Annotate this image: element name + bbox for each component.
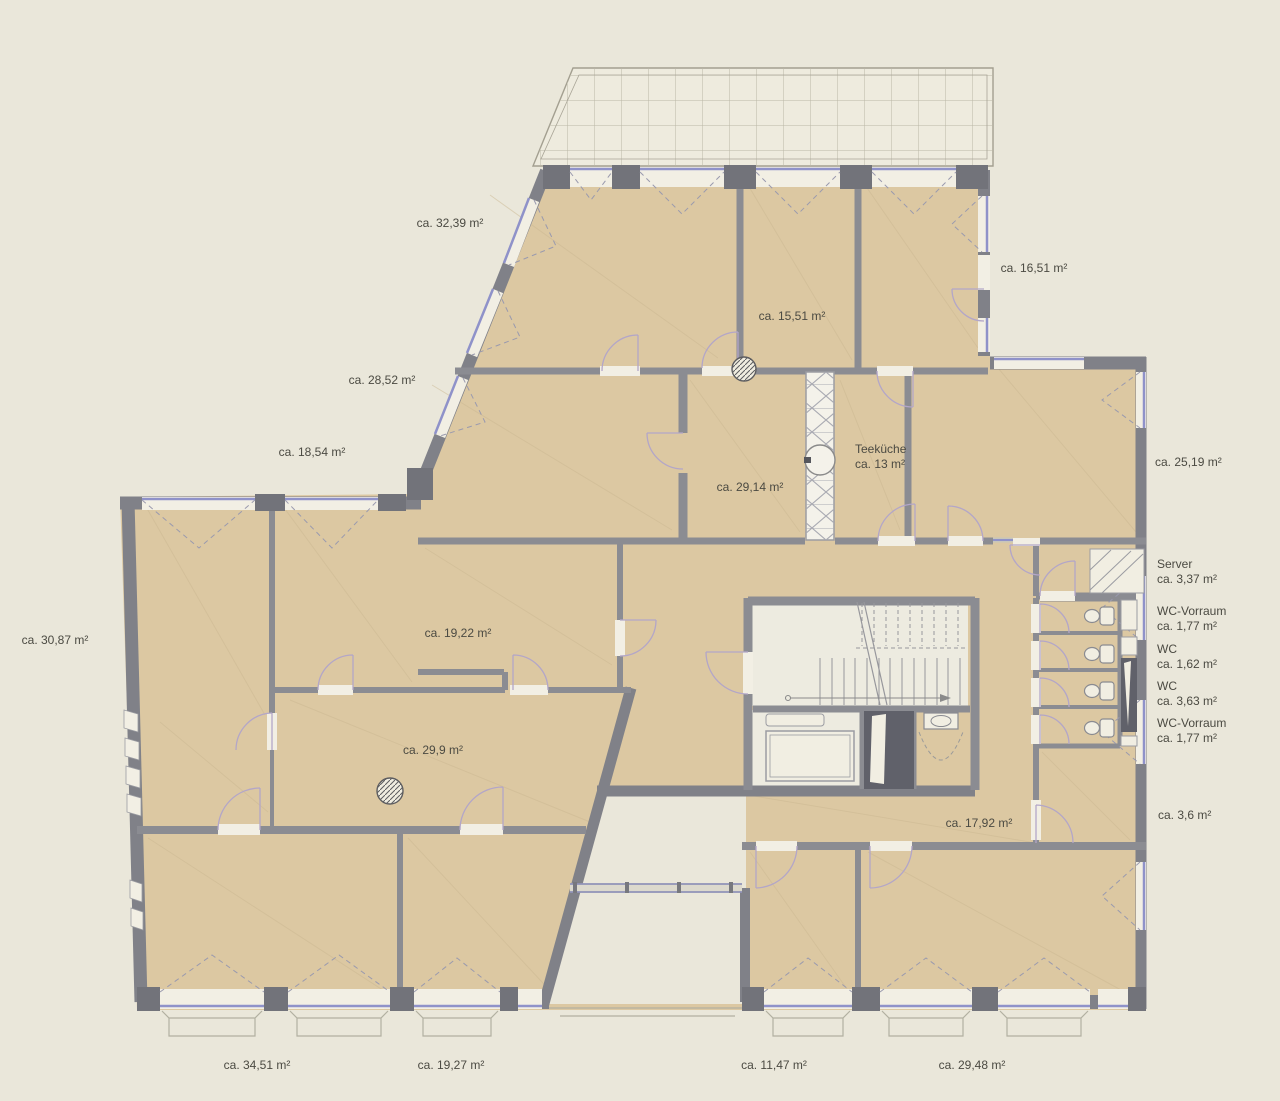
room-label-15-51: ca. 15,51 m² [759, 310, 826, 322]
room-label-32-39: ca. 32,39 m² [417, 217, 484, 229]
wc-vorraum-2-label: WC-Vorraum [1157, 717, 1226, 729]
window-sills [162, 1008, 1088, 1036]
wc-shafts [1121, 600, 1137, 746]
room-label-11-47: ca. 11,47 m² [741, 1059, 807, 1071]
wc-vorraum-1-label: WC-Vorraum [1157, 605, 1226, 617]
floorplan-drawing [0, 0, 1280, 1101]
teekueche-label: Teeküche [855, 443, 906, 455]
floorplan-page: ca. 32,39 m² ca. 16,51 m² ca. 15,51 m² c… [0, 0, 1280, 1101]
wc-2-area: ca. 3,63 m² [1157, 695, 1217, 707]
room-label-29-14: ca. 29,14 m² [717, 481, 784, 493]
terrace-label-16-51: ca. 16,51 m² [1001, 262, 1068, 274]
room-label-30-87: ca. 30,87 m² [22, 634, 89, 646]
balcony-label-3-6: ca. 3,6 m² [1158, 809, 1211, 821]
room-label-34-51: ca. 34,51 m² [224, 1059, 291, 1071]
room-label-29-48: ca. 29,48 m² [939, 1059, 1006, 1071]
wc-1-area: ca. 1,62 m² [1157, 658, 1217, 670]
room-label-29-9: ca. 29,9 m² [403, 744, 463, 756]
wc-vorraum-2-area: ca. 1,77 m² [1157, 732, 1217, 744]
room-label-25-19: ca. 25,19 m² [1155, 456, 1222, 468]
room-label-18-54: ca. 18,54 m² [279, 446, 346, 458]
server-area-label: ca. 3,37 m² [1157, 573, 1217, 585]
room-label-17-92: ca. 17,92 m² [946, 817, 1013, 829]
teekueche-area-label: ca. 13 m² [855, 458, 905, 470]
server-shaft [1090, 549, 1144, 593]
wc-1-label: WC [1157, 643, 1177, 655]
room-label-19-22: ca. 19,22 m² [425, 627, 492, 639]
dark-shaft [864, 711, 914, 789]
terrace-grid [533, 68, 993, 166]
room-label-28-52: ca. 28,52 m² [349, 374, 416, 386]
room-label-19-27: ca. 19,27 m² [418, 1059, 485, 1071]
wc-2-label: WC [1157, 680, 1177, 692]
server-label: Server [1157, 558, 1192, 570]
wc-vorraum-1-area: ca. 1,77 m² [1157, 620, 1217, 632]
